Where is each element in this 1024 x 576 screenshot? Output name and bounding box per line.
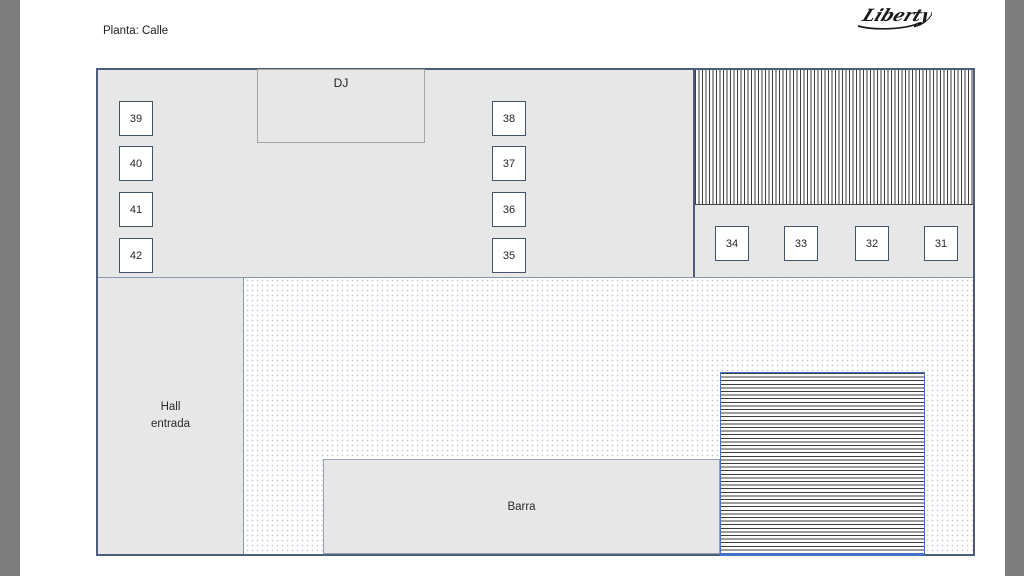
table-34: 34 [715,226,749,261]
horizontal-stripes-area [720,372,925,556]
upper-room-area: DJ [98,70,693,277]
table-37: 37 [492,146,526,181]
table-31: 31 [924,226,958,261]
slide-page: Planta: Calle Liberty DJ Hall entrada [20,0,1005,576]
floor-plan: DJ Hall entrada Barra 39 40 41 42 38 37 … [96,68,975,556]
dj-booth: DJ [257,69,425,143]
table-36: 36 [492,192,526,227]
entrance-hall: Hall entrada [98,278,244,554]
bar-counter: Barra [323,459,720,554]
bar-label: Barra [507,501,535,513]
entrance-hall-label: Hall entrada [151,399,190,433]
table-40: 40 [119,146,153,181]
dj-label: DJ [334,76,349,90]
table-35: 35 [492,238,526,273]
table-38: 38 [492,101,526,136]
liberty-logo: Liberty [852,2,932,36]
table-32: 32 [855,226,889,261]
left-letterbox-bar [0,0,20,576]
page-title: Planta: Calle [103,25,168,37]
vertical-hatch-area [695,70,973,205]
table-33: 33 [784,226,818,261]
table-42: 42 [119,238,153,273]
table-41: 41 [119,192,153,227]
right-letterbox-bar [1005,0,1024,576]
table-39: 39 [119,101,153,136]
